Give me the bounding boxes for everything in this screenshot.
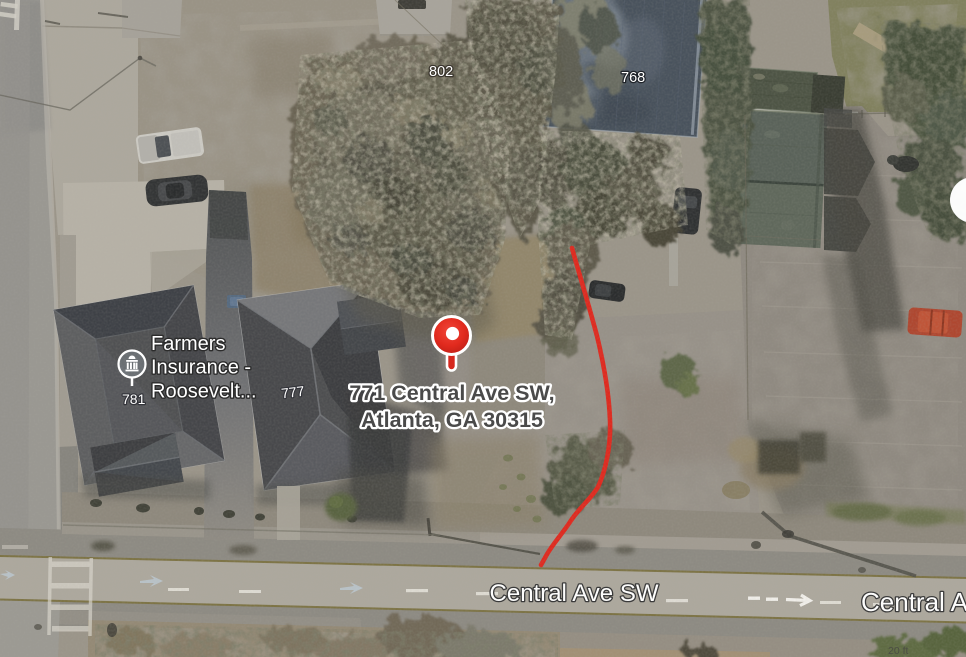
svg-text:20 ft: 20 ft [888, 645, 909, 657]
svg-text:768: 768 [621, 70, 645, 86]
svg-text:Central A: Central A [861, 587, 966, 617]
svg-text:781: 781 [122, 391, 146, 407]
svg-text:Roosevelt...: Roosevelt... [151, 381, 257, 403]
svg-text:802: 802 [429, 64, 453, 80]
svg-text:Central Ave SW: Central Ave SW [490, 580, 659, 607]
svg-text:777: 777 [280, 383, 305, 402]
svg-text:771 Central Ave SW,: 771 Central Ave SW, [349, 381, 554, 405]
svg-text:Farmers: Farmers [151, 333, 225, 355]
svg-text:Atlanta, GA 30315: Atlanta, GA 30315 [361, 408, 543, 432]
svg-text:Insurance -: Insurance - [151, 357, 251, 379]
